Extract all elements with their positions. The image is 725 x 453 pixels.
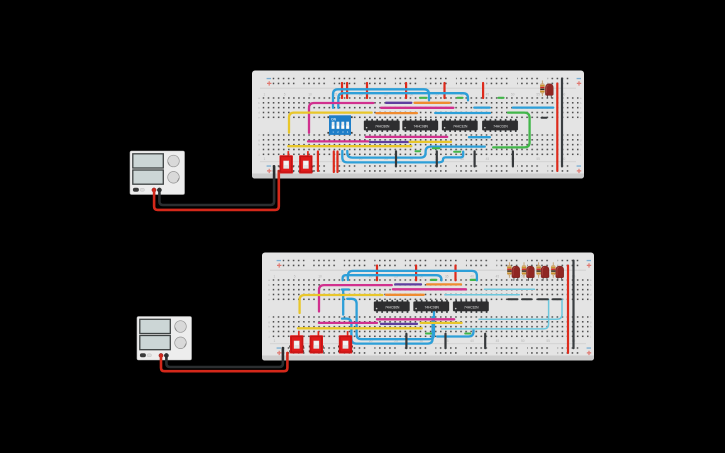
svg-text:74HC02N: 74HC02N	[493, 125, 508, 129]
svg-text:74HC08N: 74HC08N	[424, 305, 439, 309]
svg-text:74HC32N: 74HC32N	[464, 305, 479, 309]
svg-text:74HC86N: 74HC86N	[375, 125, 390, 129]
svg-text:74HC86N: 74HC86N	[385, 305, 400, 309]
svg-text:74HC08N: 74HC08N	[413, 125, 428, 129]
svg-text:74HC32N: 74HC32N	[453, 125, 468, 129]
